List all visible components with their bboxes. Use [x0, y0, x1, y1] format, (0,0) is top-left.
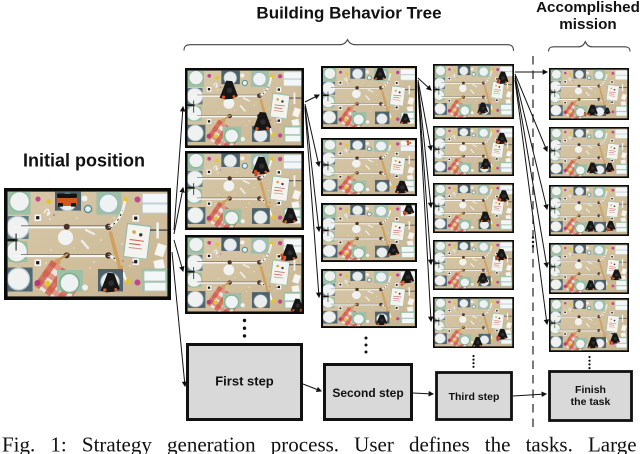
svg-text:Initial position: Initial position	[23, 151, 145, 171]
svg-text:Building Behavior Tree: Building Behavior Tree	[256, 4, 441, 23]
svg-text:Accomplished: Accomplished	[536, 0, 640, 16]
svg-text:mission: mission	[559, 16, 616, 33]
svg-text:Third step: Third step	[449, 391, 500, 403]
svg-text:the task: the task	[571, 396, 611, 408]
svg-text:First step: First step	[215, 374, 274, 389]
svg-text:Finish: Finish	[575, 384, 606, 396]
svg-text:Second step: Second step	[332, 386, 403, 400]
svg-text:Fig. 1: Strategy generation pr: Fig. 1: Strategy generation process. Use…	[2, 433, 637, 454]
